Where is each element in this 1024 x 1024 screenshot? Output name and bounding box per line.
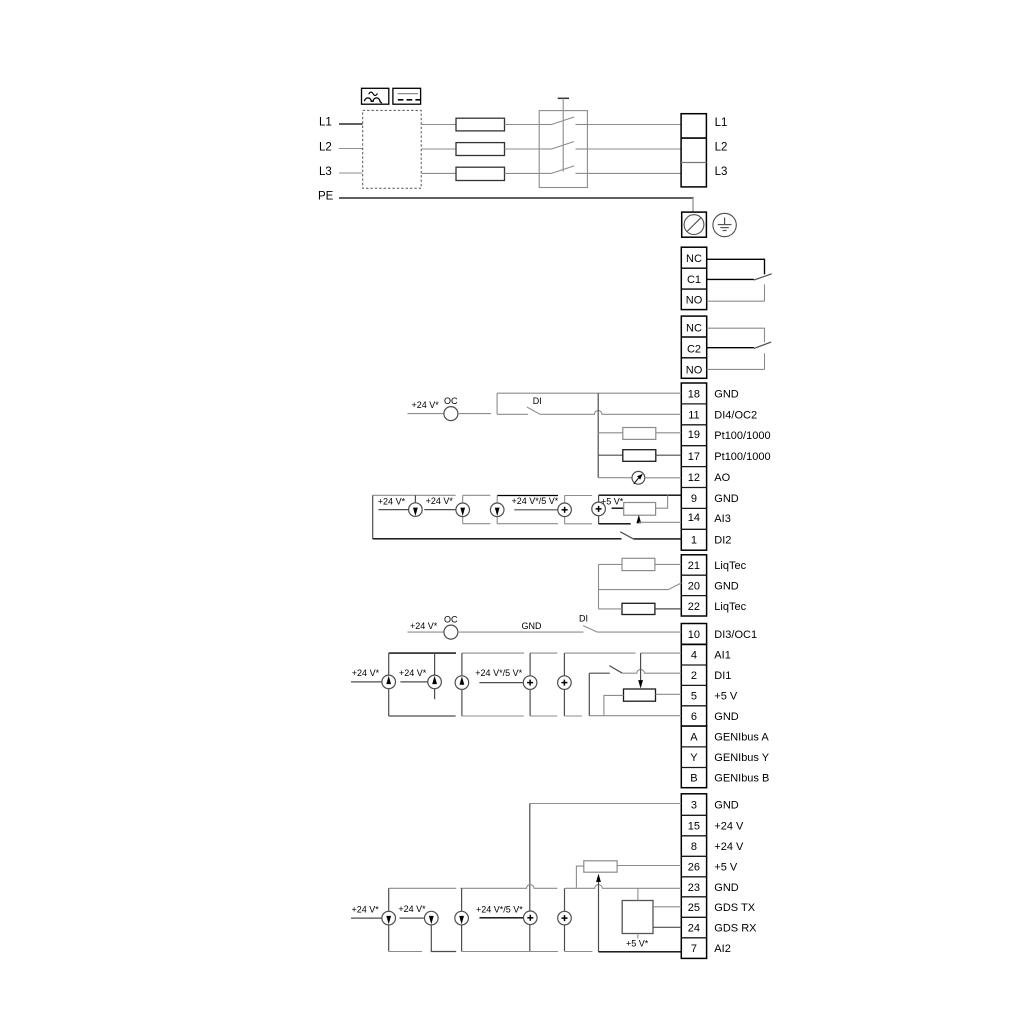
svg-text:10: 10: [688, 629, 700, 641]
svg-text:22: 22: [688, 601, 700, 613]
svg-text:24: 24: [688, 923, 700, 935]
svg-text:AI3: AI3: [714, 513, 731, 525]
svg-text:+24 V*/5 V*: +24 V*/5 V*: [476, 905, 523, 915]
svg-text:LiqTec: LiqTec: [714, 560, 746, 572]
svg-text:+5 V: +5 V: [714, 862, 738, 874]
svg-text:7: 7: [691, 943, 697, 955]
svg-text:DI: DI: [579, 614, 588, 624]
svg-text:+24 V*: +24 V*: [426, 496, 454, 506]
svg-text:AI2: AI2: [714, 943, 731, 955]
svg-text:AI1: AI1: [714, 650, 731, 662]
svg-text:C2: C2: [687, 344, 701, 356]
svg-text:GENIbus Y: GENIbus Y: [714, 752, 769, 764]
svg-text:NO: NO: [686, 364, 703, 376]
svg-text:23: 23: [688, 882, 700, 894]
svg-text:12: 12: [688, 472, 700, 484]
svg-text:GND: GND: [714, 882, 739, 894]
svg-text:+24 V: +24 V: [714, 841, 744, 853]
svg-text:+24 V*: +24 V*: [378, 496, 406, 506]
svg-text:6: 6: [691, 711, 697, 723]
svg-text:L3: L3: [715, 166, 728, 178]
svg-text:GENIbus B: GENIbus B: [714, 773, 769, 785]
svg-text:17: 17: [688, 451, 700, 463]
svg-text:L1: L1: [319, 117, 332, 129]
svg-text:+24 V*: +24 V*: [398, 904, 426, 914]
svg-text:+24 V*/5 V*: +24 V*/5 V*: [512, 496, 559, 506]
svg-text:L3: L3: [319, 166, 332, 178]
svg-text:DI4/OC2: DI4/OC2: [714, 409, 757, 421]
svg-text:1: 1: [691, 535, 697, 547]
svg-text:+5 V: +5 V: [714, 691, 738, 703]
svg-text:25: 25: [688, 902, 700, 914]
svg-text:DI1: DI1: [714, 670, 731, 682]
svg-text:+24 V*: +24 V*: [352, 905, 380, 915]
svg-text:LiqTec: LiqTec: [714, 601, 746, 613]
svg-text:+5 V*: +5 V*: [601, 496, 624, 506]
svg-text:L2: L2: [319, 142, 332, 154]
svg-text:GND: GND: [714, 388, 739, 400]
svg-text:8: 8: [691, 841, 697, 853]
svg-text:AO: AO: [714, 472, 730, 484]
svg-text:Pt100/1000: Pt100/1000: [714, 430, 770, 442]
svg-text:+24 V*/5 V*: +24 V*/5 V*: [475, 668, 522, 678]
svg-text:GND: GND: [714, 580, 739, 592]
svg-text:GENIbus A: GENIbus A: [714, 732, 769, 744]
svg-text:DI2: DI2: [714, 535, 731, 547]
svg-text:NC: NC: [686, 253, 702, 265]
svg-text:9: 9: [691, 493, 697, 505]
svg-text:NC: NC: [686, 323, 702, 335]
svg-text:GDS TX: GDS TX: [714, 902, 755, 914]
svg-text:B: B: [690, 773, 697, 785]
svg-text:+5 V*: +5 V*: [626, 939, 649, 949]
svg-text:+24 V*: +24 V*: [412, 400, 440, 410]
svg-text:26: 26: [688, 862, 700, 874]
svg-text:DI: DI: [533, 396, 542, 406]
svg-text:+24 V: +24 V: [714, 821, 744, 833]
svg-text:L1: L1: [715, 117, 728, 129]
svg-text:18: 18: [688, 388, 700, 400]
svg-text:19: 19: [688, 429, 700, 441]
svg-text:L2: L2: [715, 142, 728, 154]
svg-text:+24 V*: +24 V*: [399, 668, 427, 678]
svg-text:4: 4: [691, 650, 697, 662]
svg-text:GND: GND: [522, 621, 543, 631]
svg-text:Pt100/1000: Pt100/1000: [714, 451, 770, 463]
svg-text:+24 V*: +24 V*: [410, 621, 438, 631]
svg-text:21: 21: [688, 560, 700, 572]
svg-text:15: 15: [688, 821, 700, 833]
svg-text:OC: OC: [444, 396, 458, 406]
svg-text:GND: GND: [714, 493, 739, 505]
svg-text:GND: GND: [714, 711, 739, 723]
svg-text:20: 20: [688, 580, 700, 592]
svg-text:C1: C1: [687, 274, 701, 286]
svg-text:NO: NO: [686, 295, 703, 307]
svg-text:+24 V*: +24 V*: [352, 668, 380, 678]
svg-text:11: 11: [688, 409, 699, 421]
svg-text:2: 2: [691, 670, 697, 682]
svg-text:GND: GND: [714, 800, 739, 812]
svg-text:5: 5: [691, 691, 697, 703]
svg-text:3: 3: [691, 800, 697, 812]
svg-text:DI3/OC1: DI3/OC1: [714, 629, 757, 641]
svg-text:GDS RX: GDS RX: [714, 923, 757, 935]
svg-text:OC: OC: [444, 615, 458, 625]
svg-text:14: 14: [688, 512, 700, 524]
svg-text:Y: Y: [690, 752, 698, 764]
svg-text:PE: PE: [318, 191, 334, 203]
svg-text:A: A: [690, 732, 698, 744]
